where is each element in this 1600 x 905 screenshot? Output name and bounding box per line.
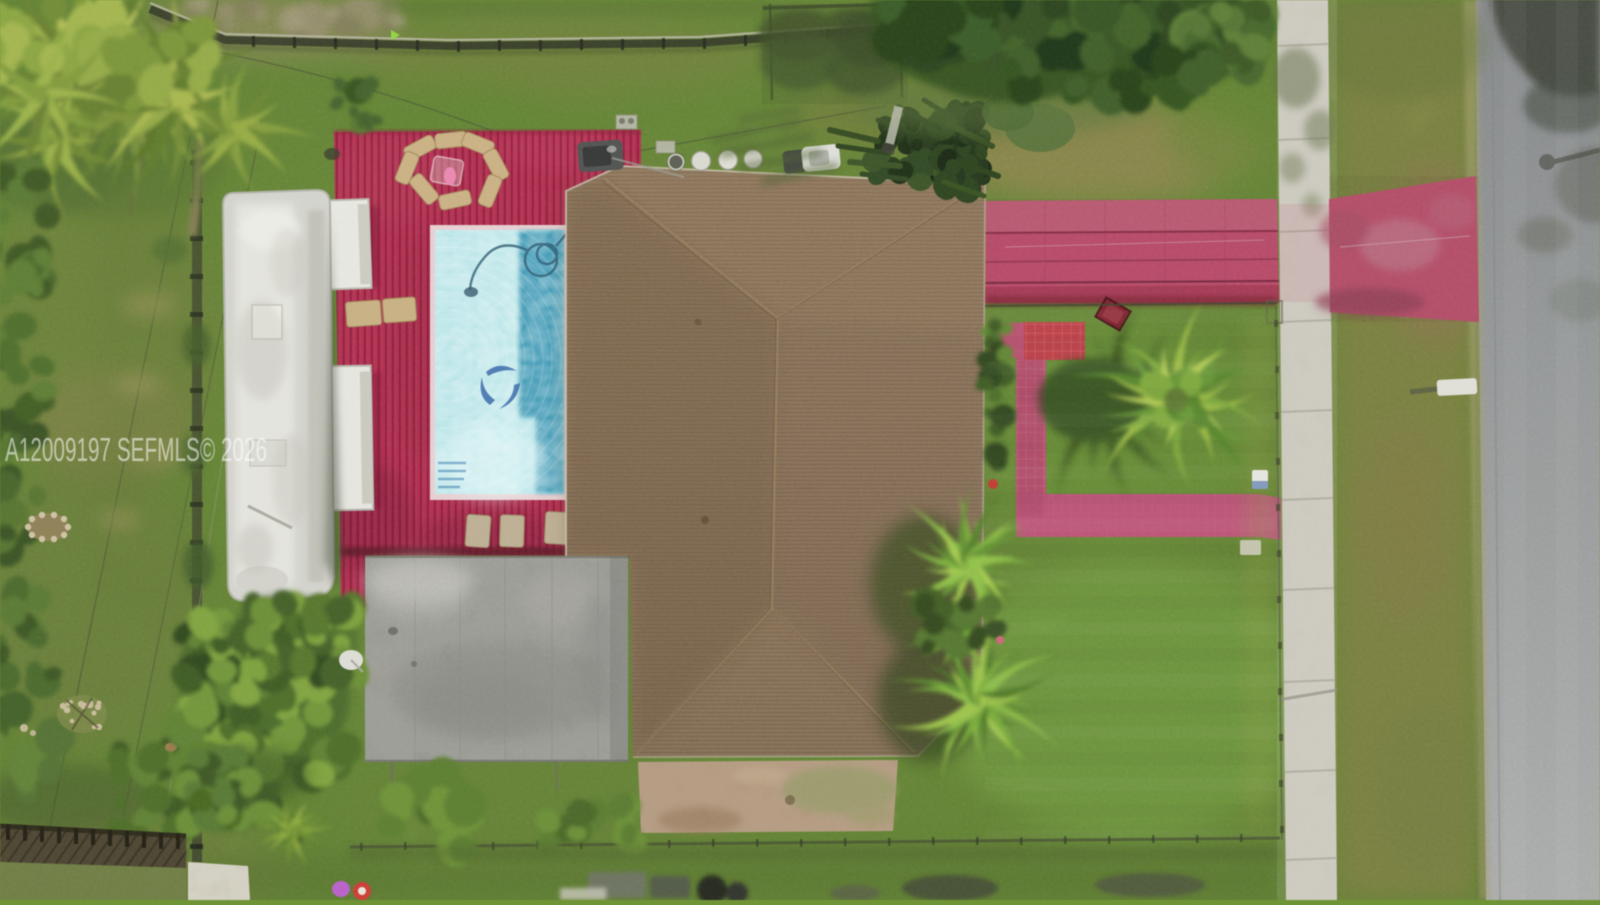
svg-text:A12009197 SEFMLS© 2026: A12009197 SEFMLS© 2026: [5, 431, 267, 468]
